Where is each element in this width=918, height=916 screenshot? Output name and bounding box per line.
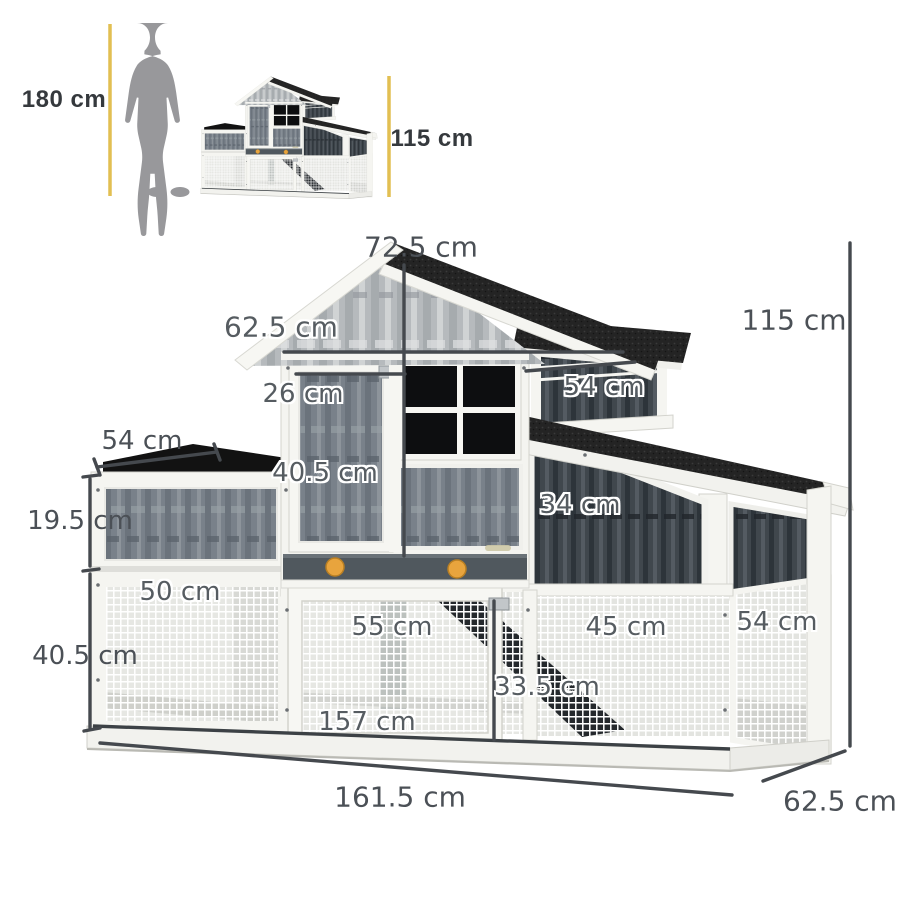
dim-label-right-run-width: 45 cm <box>586 612 667 642</box>
dim-label-planter-width: 54 cm <box>102 426 183 456</box>
dim-label-side-depth: 54 cm <box>737 607 818 637</box>
dim-label-right-panel-height: 34 cm <box>540 490 621 520</box>
dim-label-peak-height: 72.5 cm <box>364 231 478 264</box>
dim-label-run-height: 40.5 cm <box>32 641 138 671</box>
dim-label-nest-box-width: 54 cm <box>564 372 645 402</box>
person-height-label: 180 cm <box>22 86 106 114</box>
dim-label-upper-roof-width: 62.5 cm <box>224 311 338 344</box>
product-height-label: 115 cm <box>390 125 473 153</box>
dim-label-overall-height: 115 cm <box>741 304 846 337</box>
coop-illustration <box>87 242 853 771</box>
dim-label-ramp-door-height: 33.5 cm <box>494 672 600 702</box>
dim-label-inner-width: 157 cm <box>318 707 416 737</box>
person-silhouette-icon <box>125 23 189 236</box>
coop-thumbnail <box>200 76 377 198</box>
product-dimension-diagram: 180 cm 115 cm 72.5 cm 62.5 cm 26 cm 54 c… <box>0 0 918 916</box>
dim-label-left-run-width: 50 cm <box>140 577 221 607</box>
size-comparison <box>110 23 389 236</box>
dim-label-overall-depth: 62.5 cm <box>783 785 897 818</box>
dim-label-overall-width: 161.5 cm <box>334 781 466 814</box>
dim-label-house-door-height: 40.5 cm <box>272 458 378 488</box>
dim-label-center-door-width: 55 cm <box>352 612 433 642</box>
dim-label-house-door-width: 26 cm <box>263 379 344 409</box>
dim-label-planter-height: 19.5 cm <box>27 506 133 536</box>
